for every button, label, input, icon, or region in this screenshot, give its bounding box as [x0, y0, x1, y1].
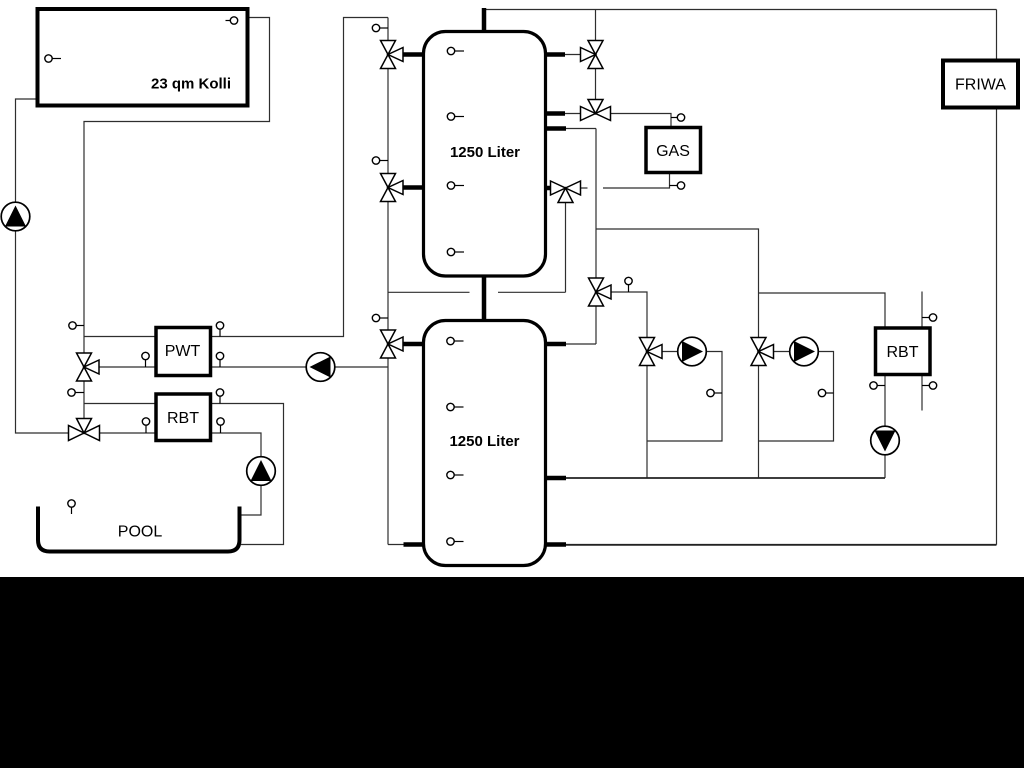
svg-text:FRIWA: FRIWA	[955, 77, 1006, 94]
svg-text:23 qm Kolli: 23 qm Kolli	[151, 76, 231, 93]
svg-text:RBT: RBT	[887, 344, 919, 361]
svg-text:1250 Liter: 1250 Liter	[450, 144, 520, 161]
svg-text:PWT: PWT	[165, 343, 201, 360]
svg-text:POOL: POOL	[118, 524, 163, 541]
svg-text:RBT: RBT	[167, 410, 199, 427]
svg-text:GAS: GAS	[656, 143, 690, 160]
svg-text:1250 Liter: 1250 Liter	[449, 433, 519, 450]
